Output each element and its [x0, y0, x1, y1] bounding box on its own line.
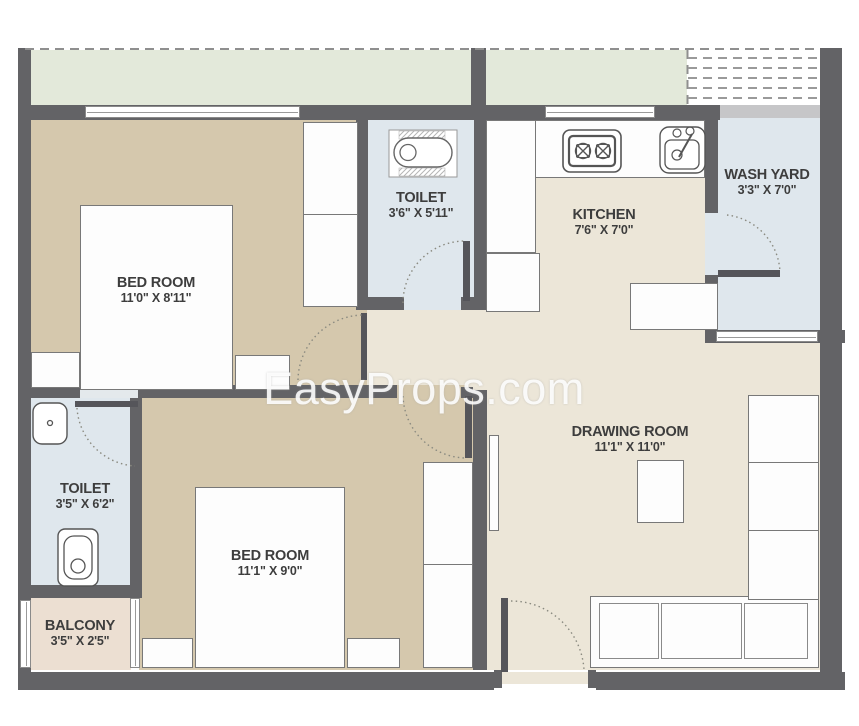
wall-kitchen-washyard-upper	[705, 105, 718, 213]
room-label-kitchen: KITCHEN 7'6" X 7'0"	[572, 207, 635, 237]
wall-toilet-top-right	[474, 118, 486, 310]
watermark: EasyProps.com	[263, 363, 585, 415]
sofa-cushion	[661, 603, 742, 659]
center-table	[637, 460, 684, 523]
room-dims: 3'6" X 5'11"	[389, 206, 454, 220]
room-name: TOILET	[56, 481, 115, 497]
room-name: DRAWING ROOM	[572, 424, 689, 440]
room-label-bedroom-top: BED ROOM 11'0" X 8'11"	[117, 275, 195, 305]
room-dims: 11'1" X 11'0"	[572, 440, 689, 454]
room-name: BALCONY	[45, 618, 115, 634]
room-dims: 11'0" X 8'11"	[117, 291, 195, 305]
room-dims: 11'1" X 9'0"	[231, 564, 309, 578]
kitchen-cabinet-right	[630, 283, 718, 330]
room-label-bedroom-bottom: BED ROOM 11'1" X 9'0"	[231, 548, 309, 578]
wardrobe-divider	[424, 564, 472, 565]
sofa-divider	[749, 530, 818, 531]
wall-bedroom-drawing	[473, 390, 487, 670]
sofa-bottom	[590, 596, 819, 668]
bedroom-top-window	[85, 106, 300, 118]
nightstand-top-left	[31, 352, 80, 388]
room-label-toilet-top: TOILET 3'6" X 5'11"	[389, 190, 454, 220]
wardrobe-bedroom-bottom	[423, 462, 473, 668]
wash-yard-floor	[718, 118, 820, 330]
room-name: KITCHEN	[572, 207, 635, 223]
open-chajja-area	[687, 50, 820, 105]
room-label-balcony: BALCONY 3'5" X 2'5"	[45, 618, 115, 648]
wall-terrace-divider	[471, 48, 486, 120]
wall-bottom-left	[18, 672, 494, 690]
kitchen-cabinet-left	[486, 253, 540, 312]
kitchen-window	[545, 106, 655, 118]
balcony-outer-window	[20, 600, 31, 668]
main-door-stub-left	[494, 670, 502, 688]
room-dims: 3'5" X 2'5"	[45, 634, 115, 648]
nightstand-bottom-right	[347, 638, 400, 668]
room-name: BED ROOM	[231, 548, 309, 564]
wall-right	[820, 48, 842, 690]
wall-toilet-top-hinge-stub	[461, 297, 474, 310]
wall-toilet-top-bottom	[356, 297, 404, 310]
room-name: WASH YARD	[724, 167, 809, 183]
tv-unit	[489, 435, 499, 531]
room-dims: 3'5" X 6'2"	[56, 497, 115, 511]
wall-toilet-side-bottom	[18, 585, 142, 598]
wash-yard-window	[716, 331, 818, 342]
terrace-strip-left	[31, 50, 471, 105]
wall-bottom-right	[596, 672, 845, 690]
room-name: TOILET	[389, 190, 454, 206]
room-label-toilet-side: TOILET 3'5" X 6'2"	[56, 481, 115, 511]
wash-yard-door-gap	[705, 213, 718, 275]
sofa-cushion	[599, 603, 659, 659]
balcony-bedroom-window	[130, 598, 140, 668]
nightstand-bottom-left	[142, 638, 193, 668]
wardrobe-divider	[304, 214, 357, 215]
terrace-strip-right	[484, 50, 687, 105]
wash-yard-window-band	[718, 105, 820, 118]
floor-plan: BED ROOM 11'0" X 8'11" TOILET 3'6" X 5'1…	[0, 0, 859, 726]
wall-toilet-side-right	[130, 398, 142, 585]
room-dims: 7'6" X 7'0"	[572, 223, 635, 237]
room-label-wash-yard: WASH YARD 3'3" X 7'0"	[724, 167, 809, 197]
main-door-stub-right	[588, 670, 596, 688]
room-label-drawing-room: DRAWING ROOM 11'1" X 11'0"	[572, 424, 689, 454]
sofa-cushion	[744, 603, 808, 659]
room-dims: 3'3" X 7'0"	[724, 183, 809, 197]
sofa-column	[748, 395, 819, 600]
wardrobe-bedroom-top	[303, 122, 358, 307]
kitchen-counter-left	[486, 120, 536, 253]
main-doorway	[502, 672, 588, 684]
sofa-divider	[749, 462, 818, 463]
room-name: BED ROOM	[117, 275, 195, 291]
